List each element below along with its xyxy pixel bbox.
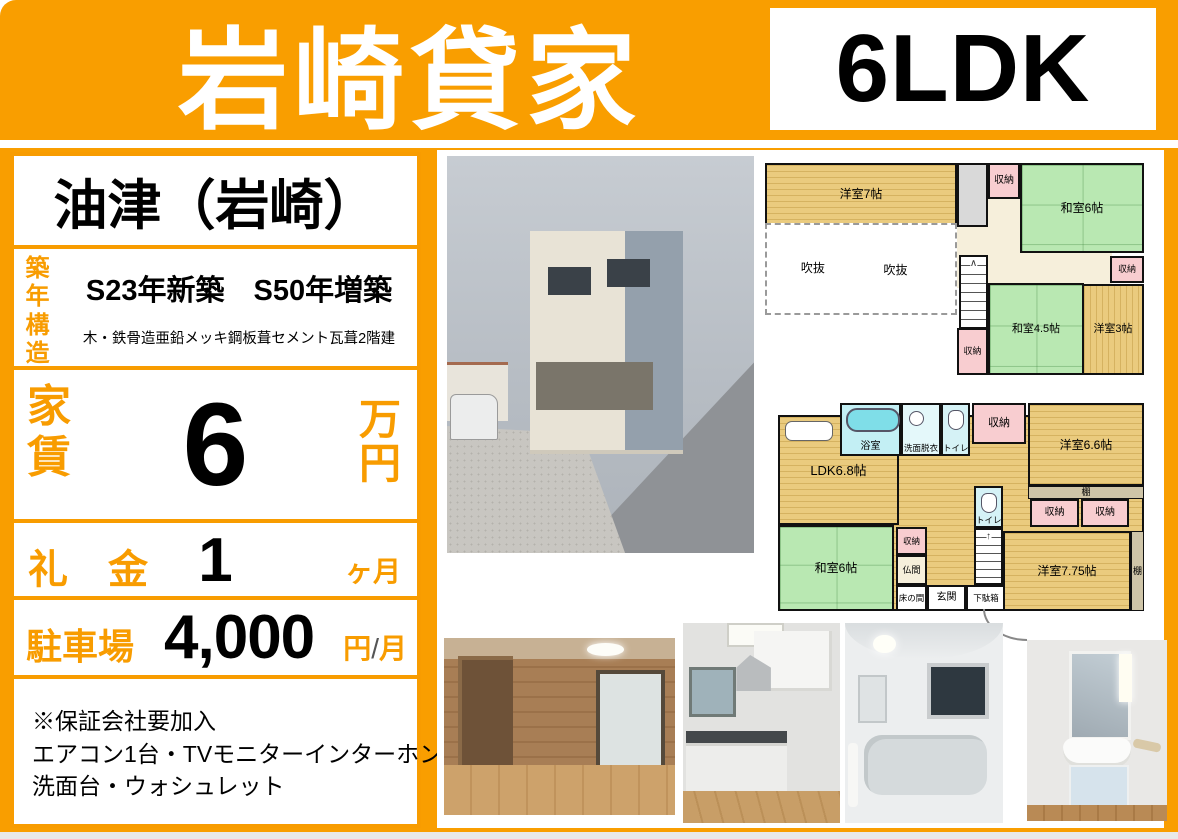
toilet-mid: トイレ bbox=[974, 486, 1003, 528]
stair-hall-2f bbox=[957, 163, 988, 227]
ceiling-light bbox=[587, 643, 624, 655]
room-label: 下駄箱 bbox=[973, 594, 999, 603]
bathroom: 浴室 bbox=[840, 403, 901, 456]
genkan: 玄関 bbox=[927, 585, 966, 611]
closet-label: 収納 bbox=[1095, 508, 1115, 518]
room-label: トイレ bbox=[976, 516, 1001, 525]
counter bbox=[686, 731, 786, 743]
floorplan-1f: LDK6.8帖 浴室 洗面脱衣 トイレ 収納 洋室6.6帖 bbox=[778, 403, 1144, 611]
room-washitsu6-1f: 和室6帖 bbox=[778, 525, 894, 611]
butsuma: 仏間 bbox=[896, 555, 927, 585]
kitchen-photo bbox=[683, 623, 840, 823]
room-label: 洋室6.6帖 bbox=[1060, 439, 1113, 451]
key-money-box: 礼 金 1 ヶ月 bbox=[10, 519, 421, 600]
parked-van bbox=[450, 394, 498, 440]
bathtub bbox=[864, 735, 987, 795]
hallway-photo bbox=[444, 638, 675, 815]
closet-1f-b: 収納 bbox=[1081, 499, 1129, 527]
parking-value: 4,000 bbox=[164, 602, 314, 673]
window bbox=[548, 267, 591, 295]
wood-floor bbox=[444, 765, 675, 815]
note-washstand: 洗面台・ウォシュレット bbox=[32, 770, 403, 803]
floorplan-2f: 洋室7帖 吹抜 吹抜 収納 和室6帖 ∧ 収納 和室4.5帖 bbox=[765, 163, 1144, 375]
parking-unit-month: 月 bbox=[379, 633, 407, 664]
note-equipment: エアコン1台・TVモニターインターホン bbox=[32, 738, 403, 771]
bathroom-photo bbox=[845, 623, 1003, 823]
room-yoshitsu775: 洋室7.75帖 bbox=[1003, 531, 1131, 611]
ceiling bbox=[845, 623, 1003, 659]
ceiling-light bbox=[873, 635, 895, 653]
room-yoshitsu66: 洋室6.6帖 bbox=[1028, 403, 1144, 486]
closet-2f-top: 収納 bbox=[988, 163, 1020, 199]
structure-note: 木・鉄骨造亜鉛メッキ鋼板葺セメント瓦葺2階建 bbox=[60, 327, 418, 348]
towel-rail bbox=[1133, 739, 1162, 754]
layout-badge-text: 6LDK bbox=[836, 14, 1091, 124]
room-label: 洋室7.75帖 bbox=[1037, 565, 1096, 577]
closet-2f-bottom: 収納 bbox=[957, 328, 988, 375]
location-box: 油津（岩崎） bbox=[10, 152, 421, 249]
grab-rail bbox=[848, 743, 857, 807]
shelf-right: 棚 bbox=[1131, 531, 1144, 611]
shelf-label: 棚 bbox=[1081, 488, 1090, 497]
sink-icon bbox=[909, 411, 924, 426]
exterior-photo bbox=[447, 156, 754, 553]
room-label: LDK6.8帖 bbox=[810, 464, 866, 477]
void-label: 吹抜 bbox=[884, 264, 908, 276]
location-title: 油津（岩崎） bbox=[54, 161, 378, 240]
closet-1f-a: 収納 bbox=[1030, 499, 1079, 527]
stairs-2f: ∧ bbox=[959, 255, 988, 329]
room-label: トイレ bbox=[943, 444, 968, 453]
getabako: 下駄箱 bbox=[966, 585, 1006, 611]
parking-unit-slash: / bbox=[371, 633, 379, 664]
room-label: 仏間 bbox=[902, 566, 920, 575]
closet-label: 収納 bbox=[903, 537, 920, 546]
room-washitsu45: 和室4.5帖 bbox=[988, 283, 1084, 375]
shelf bbox=[858, 675, 887, 723]
closet-label: 収納 bbox=[994, 176, 1014, 186]
toilet-top: トイレ bbox=[941, 403, 970, 456]
doorway bbox=[458, 656, 513, 776]
layout-badge: 6LDK bbox=[770, 8, 1156, 130]
closet-label: 収納 bbox=[963, 347, 981, 356]
void-label: 吹抜 bbox=[801, 262, 825, 274]
shelf-top: 棚 bbox=[1028, 486, 1144, 499]
parking-label: 駐車場 bbox=[26, 618, 134, 670]
wood-floor bbox=[1027, 805, 1167, 821]
void-area: 吹抜 吹抜 bbox=[765, 223, 957, 315]
toilet-icon bbox=[948, 410, 964, 430]
stairs-up-icon: ↑ bbox=[986, 532, 991, 542]
page-bottom-edge bbox=[0, 832, 1178, 839]
parking-unit-yen: 円 bbox=[343, 633, 371, 664]
parking-box: 駐車場 4,000 円/月 bbox=[10, 596, 421, 679]
built-structure-label: 築年構造 bbox=[24, 255, 51, 368]
built-structure-box: 築年構造 S23年新築 S50年増築 木・鉄骨造亜鉛メッキ鋼板葺セメント瓦葺2階… bbox=[10, 245, 421, 370]
window bbox=[607, 259, 650, 287]
room-label: 和室6帖 bbox=[1061, 202, 1104, 214]
glass-door bbox=[596, 670, 664, 775]
closet-1f-top: 収納 bbox=[972, 403, 1026, 444]
room-label: 洗面脱衣 bbox=[903, 444, 939, 453]
closet-label: 収納 bbox=[988, 418, 1010, 429]
room-yoshitsu3: 洋室3帖 bbox=[1082, 284, 1144, 375]
room-label: 床の間 bbox=[899, 594, 925, 603]
shelf-label: 棚 bbox=[1133, 567, 1142, 576]
vanity-cabinet bbox=[1069, 765, 1129, 809]
page-title: 岩崎貸家 bbox=[55, 4, 765, 138]
toilet-icon bbox=[981, 493, 997, 513]
media-panel: 洋室7帖 吹抜 吹抜 収納 和室6帖 ∧ 収納 和室4.5帖 bbox=[437, 150, 1164, 828]
window bbox=[689, 667, 736, 717]
stairs-up-icon: ∧ bbox=[970, 259, 977, 269]
basin bbox=[1063, 738, 1130, 767]
light-bar bbox=[1119, 654, 1132, 701]
closet-label: 収納 bbox=[1118, 265, 1136, 274]
room-label: 洋室7帖 bbox=[840, 188, 883, 200]
lower-cabinets bbox=[686, 743, 786, 791]
room-label: 和室6帖 bbox=[815, 562, 858, 574]
flyer-page: 岩崎貸家 6LDK 油津（岩崎） 築年構造 S23年新築 S50年増築 木・鉄骨… bbox=[0, 0, 1178, 839]
tokonoma: 床の間 bbox=[896, 585, 927, 611]
note-guarantor: ※保証会社要加入 bbox=[32, 705, 403, 738]
window bbox=[927, 663, 989, 719]
washstand-photo bbox=[1027, 640, 1167, 821]
rent-unit: 万円 bbox=[357, 398, 403, 486]
built-year-value: S23年新築 S50年増築 bbox=[64, 267, 414, 309]
room-label: 玄関 bbox=[937, 593, 957, 603]
wood-floor bbox=[683, 791, 840, 823]
room-label: 洋室3帖 bbox=[1093, 324, 1132, 335]
closet-label: 収納 bbox=[1045, 508, 1065, 518]
washroom: 洗面脱衣 bbox=[901, 403, 941, 456]
closet-1f-small: 収納 bbox=[896, 527, 927, 555]
closet-2f-right: 収納 bbox=[1110, 256, 1144, 283]
stairs-1f: ↑ bbox=[974, 528, 1003, 585]
key-money-unit: ヶ月 bbox=[345, 550, 401, 590]
kitchen-sink bbox=[785, 421, 833, 441]
room-yoshitsu7: 洋室7帖 bbox=[765, 163, 957, 225]
shutter bbox=[536, 362, 653, 410]
bathtub-icon bbox=[846, 408, 900, 432]
notes-box: ※保証会社要加入 エアコン1台・TVモニターインターホン 洗面台・ウォシュレット bbox=[10, 675, 421, 828]
room-label: 浴室 bbox=[842, 442, 899, 452]
parking-unit: 円/月 bbox=[343, 627, 407, 667]
rent-box: 家賃 6 万円 bbox=[10, 366, 421, 523]
room-washitsu6-2f: 和室6帖 bbox=[1020, 163, 1144, 253]
room-label: 和室4.5帖 bbox=[1012, 324, 1060, 335]
